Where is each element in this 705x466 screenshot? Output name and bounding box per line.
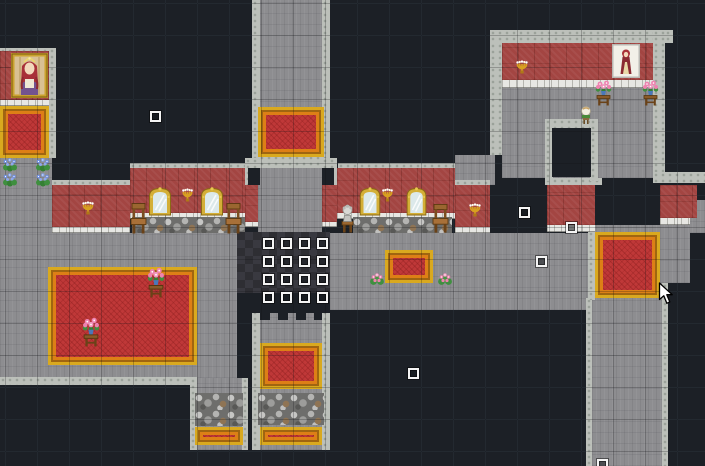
event-marker[interactable] bbox=[299, 292, 310, 303]
chair bbox=[225, 202, 242, 236]
event-marker[interactable] bbox=[317, 256, 328, 267]
event-marker[interactable] bbox=[299, 274, 310, 285]
dark-tile-region bbox=[552, 128, 591, 177]
mirror bbox=[404, 185, 429, 217]
wall-sconce bbox=[380, 187, 395, 203]
event-marker[interactable] bbox=[299, 256, 310, 267]
event-marker[interactable] bbox=[317, 292, 328, 303]
dark-tile-region bbox=[314, 308, 322, 320]
rubble-tile-region bbox=[258, 393, 324, 425]
event-marker[interactable] bbox=[281, 256, 292, 267]
shelf-tile-region bbox=[245, 222, 258, 227]
shelf-tile-region bbox=[322, 222, 337, 227]
flower-table bbox=[82, 317, 100, 347]
dark-tile-region bbox=[278, 308, 288, 320]
chair bbox=[432, 203, 449, 235]
event-marker[interactable] bbox=[263, 238, 274, 249]
stone-tile-region bbox=[590, 119, 598, 181]
stone-tile-region bbox=[322, 310, 330, 450]
rubble-tile-region bbox=[195, 393, 243, 426]
flower-table bbox=[595, 80, 612, 106]
carpet-tile-region bbox=[595, 232, 660, 298]
blue-flowers bbox=[35, 157, 51, 172]
shelf-tile-region bbox=[502, 80, 653, 88]
carpet-tile-region bbox=[48, 267, 197, 365]
stone-tile-region bbox=[49, 48, 56, 158]
pink-bush bbox=[437, 271, 453, 287]
shelf-tile-region bbox=[660, 218, 690, 225]
stone-tile-region bbox=[0, 377, 197, 385]
event-marker[interactable] bbox=[317, 274, 328, 285]
stone-tile-region bbox=[490, 43, 502, 155]
shelf-tile-region bbox=[52, 227, 130, 233]
blue-flowers bbox=[35, 172, 51, 187]
statue bbox=[340, 203, 355, 233]
event-marker[interactable] bbox=[597, 459, 608, 466]
chair bbox=[130, 202, 147, 236]
event-marker[interactable] bbox=[263, 292, 274, 303]
carpet-tile-region bbox=[0, 106, 49, 158]
carpet-tile-region bbox=[260, 427, 322, 445]
mirror bbox=[198, 185, 226, 217]
stone-tile-region bbox=[490, 30, 673, 43]
dark-tile-region bbox=[248, 168, 260, 185]
redwall-tile-region bbox=[547, 185, 595, 225]
stone-tile-region bbox=[588, 225, 595, 300]
event-marker[interactable] bbox=[566, 222, 577, 233]
portrait-queen bbox=[11, 53, 48, 98]
event-marker[interactable] bbox=[281, 292, 292, 303]
stone-tile-region bbox=[662, 283, 668, 466]
event-marker[interactable] bbox=[519, 207, 530, 218]
event-marker[interactable] bbox=[263, 256, 274, 267]
stone-tile-region bbox=[653, 172, 705, 183]
floor-tile-region bbox=[258, 168, 322, 233]
floor-tile-region bbox=[592, 283, 662, 466]
portrait-lady bbox=[612, 44, 640, 78]
mouse-cursor-icon bbox=[658, 282, 676, 305]
stone-tile-region bbox=[586, 298, 592, 466]
event-marker[interactable] bbox=[281, 274, 292, 285]
shelf-tile-region bbox=[455, 227, 490, 233]
redwall-tile-region bbox=[660, 185, 697, 218]
map-canvas[interactable] bbox=[0, 0, 705, 466]
dark-tile-region bbox=[322, 168, 334, 185]
event-marker[interactable] bbox=[317, 238, 328, 249]
event-marker[interactable] bbox=[299, 238, 310, 249]
orb-stand bbox=[579, 105, 593, 124]
flower-table bbox=[642, 80, 659, 106]
blue-flowers bbox=[2, 157, 18, 172]
redwall-tile-region bbox=[322, 185, 337, 222]
wall-sconce bbox=[514, 59, 530, 75]
carpet-tile-region bbox=[195, 427, 243, 445]
event-marker[interactable] bbox=[281, 238, 292, 249]
event-marker[interactable] bbox=[263, 274, 274, 285]
redwall-tile-region bbox=[245, 185, 258, 222]
wall-sconce bbox=[80, 200, 96, 216]
dark-tile-region bbox=[296, 308, 306, 320]
carpet-tile-region bbox=[385, 250, 433, 283]
flower-table bbox=[147, 267, 165, 298]
blue-flowers bbox=[2, 172, 18, 187]
dark-tile-region bbox=[260, 308, 270, 320]
pink-bush bbox=[369, 271, 385, 287]
carpet-tile-region bbox=[260, 343, 322, 389]
mirror bbox=[146, 185, 174, 217]
stone-tile-region bbox=[252, 310, 260, 450]
wall-sconce bbox=[467, 202, 483, 218]
wall-sconce bbox=[180, 187, 195, 203]
event-marker[interactable] bbox=[536, 256, 547, 267]
event-marker[interactable] bbox=[408, 368, 419, 379]
event-marker[interactable] bbox=[150, 111, 161, 122]
carpet-tile-region bbox=[258, 107, 324, 157]
